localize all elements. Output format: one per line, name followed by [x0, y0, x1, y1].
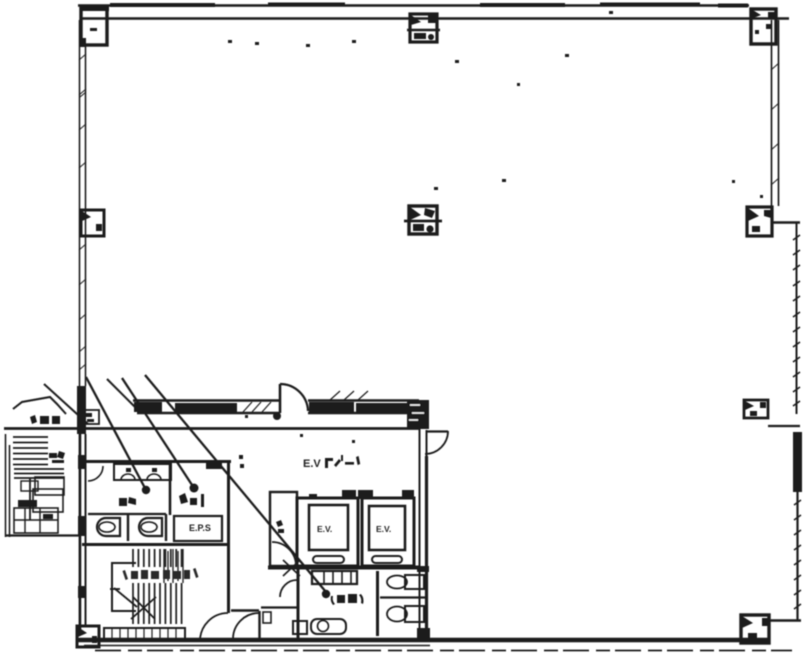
svg-text:E.V.: E.V. [317, 524, 332, 534]
svg-text:E.V.: E.V. [376, 524, 391, 534]
svg-text:E.P.S: E.P.S [189, 523, 211, 533]
svg-text:E.V: E.V [303, 458, 321, 470]
